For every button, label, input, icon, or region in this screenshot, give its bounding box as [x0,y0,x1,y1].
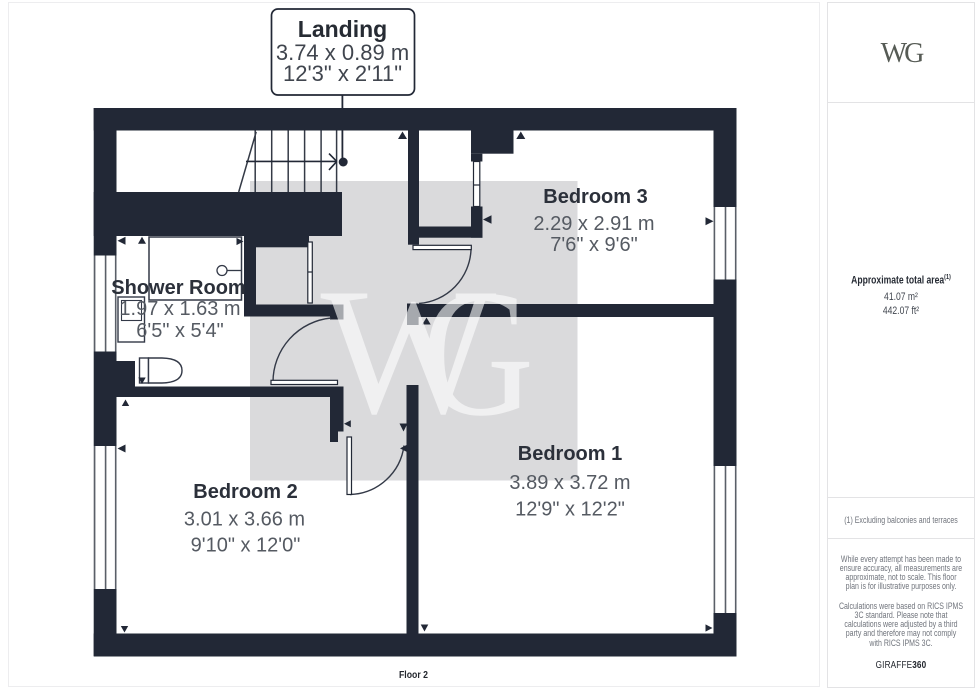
svg-text:12'3" x 2'11": 12'3" x 2'11" [283,61,402,86]
svg-text:9'10" x 12'0": 9'10" x 12'0" [191,535,301,557]
svg-text:Landing: Landing [298,16,387,42]
svg-text:3.89 x 3.72 m: 3.89 x 3.72 m [509,472,630,494]
svg-text:Shower Room: Shower Room [111,277,245,299]
svg-text:3.01 x 3.66 m: 3.01 x 3.66 m [184,509,305,531]
svg-text:1.97 x 1.63 m: 1.97 x 1.63 m [119,298,240,320]
svg-text:12'9" x 12'2": 12'9" x 12'2" [515,499,625,521]
svg-text:Floor 2: Floor 2 [399,669,428,681]
svg-text:G: G [422,253,534,454]
svg-text:Bedroom 1: Bedroom 1 [518,443,622,465]
svg-text:7'6" x 9'6": 7'6" x 9'6" [550,234,637,256]
svg-text:Bedroom 3: Bedroom 3 [543,186,647,208]
svg-text:Bedroom 2: Bedroom 2 [193,481,297,503]
svg-text:6'5" x 5'4": 6'5" x 5'4" [136,320,223,342]
svg-text:2.29 x 2.91 m: 2.29 x 2.91 m [533,213,654,235]
